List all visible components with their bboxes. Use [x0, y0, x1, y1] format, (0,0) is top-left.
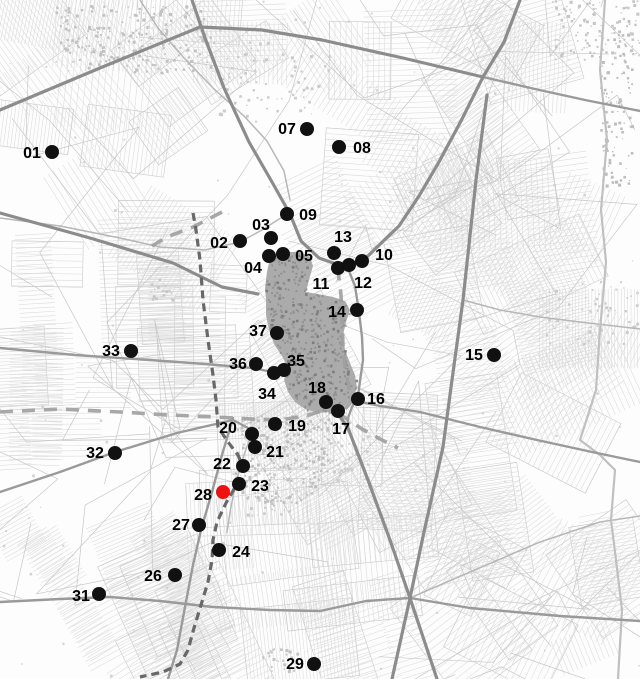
- site-label-13: 13: [334, 229, 352, 246]
- site-dot-12: [342, 258, 356, 272]
- site-label-10: 10: [375, 247, 393, 264]
- site-label-20: 20: [219, 420, 237, 437]
- site-dot-16: [351, 392, 365, 406]
- site-label-22: 22: [213, 456, 231, 473]
- site-label-03: 03: [252, 217, 270, 234]
- site-label-19: 19: [288, 418, 306, 435]
- site-map-figure: 0102030405070809101112131415161718192021…: [0, 0, 640, 679]
- site-dot-19: [268, 417, 282, 431]
- site-dot-27: [192, 518, 206, 532]
- site-label-37: 37: [249, 323, 267, 340]
- site-dot-29: [307, 657, 321, 671]
- site-dot-08: [332, 140, 346, 154]
- site-label-24: 24: [232, 544, 250, 561]
- site-label-17: 17: [332, 421, 350, 438]
- site-dot-01: [45, 145, 59, 159]
- site-dot-10: [355, 254, 369, 268]
- site-label-21: 21: [266, 444, 284, 461]
- site-dot-37: [270, 326, 284, 340]
- site-dot-15: [487, 348, 501, 362]
- site-label-29: 29: [286, 656, 304, 673]
- site-dot-32: [108, 446, 122, 460]
- site-dot-24: [212, 543, 226, 557]
- site-label-32: 32: [86, 445, 104, 462]
- site-dot-09: [280, 207, 294, 221]
- site-dot-31: [92, 587, 106, 601]
- site-dot-22: [236, 459, 250, 473]
- site-label-04: 04: [244, 260, 262, 277]
- site-label-31: 31: [72, 588, 90, 605]
- site-label-36: 36: [229, 356, 247, 373]
- site-dot-20: [245, 427, 259, 441]
- map-background: [0, 0, 640, 679]
- site-label-34: 34: [258, 386, 276, 403]
- site-label-28: 28: [194, 487, 212, 504]
- site-dot-23: [232, 477, 246, 491]
- site-label-16: 16: [367, 391, 385, 408]
- site-dot-05: [276, 247, 290, 261]
- site-label-11: 11: [313, 276, 330, 293]
- site-dot-07: [300, 122, 314, 136]
- site-label-02: 02: [210, 235, 228, 252]
- site-dot-18: [319, 395, 333, 409]
- site-dot-21: [248, 440, 262, 454]
- site-label-15: 15: [465, 347, 483, 364]
- site-label-33: 33: [102, 343, 120, 360]
- site-label-07: 07: [278, 121, 296, 138]
- site-dot-14: [350, 303, 364, 317]
- site-dot-02: [233, 234, 247, 248]
- site-label-01: 01: [23, 145, 41, 162]
- site-dot-13: [327, 246, 341, 260]
- site-dot-04: [262, 249, 276, 263]
- site-label-08: 08: [353, 140, 371, 157]
- site-label-05: 05: [295, 248, 313, 265]
- site-label-26: 26: [144, 568, 162, 585]
- site-label-27: 27: [172, 517, 190, 534]
- site-label-12: 12: [354, 275, 372, 292]
- site-dot-36: [249, 357, 263, 371]
- site-label-14: 14: [328, 304, 346, 321]
- site-dot-26: [168, 568, 182, 582]
- site-label-18: 18: [308, 380, 326, 397]
- site-label-09: 09: [299, 207, 317, 224]
- cadastral-map: 0102030405070809101112131415161718192021…: [0, 0, 640, 679]
- site-dot-33: [124, 344, 138, 358]
- site-label-35: 35: [287, 353, 305, 370]
- site-dot-17: [331, 404, 345, 418]
- site-dot-28: [216, 485, 230, 499]
- site-label-23: 23: [251, 478, 269, 495]
